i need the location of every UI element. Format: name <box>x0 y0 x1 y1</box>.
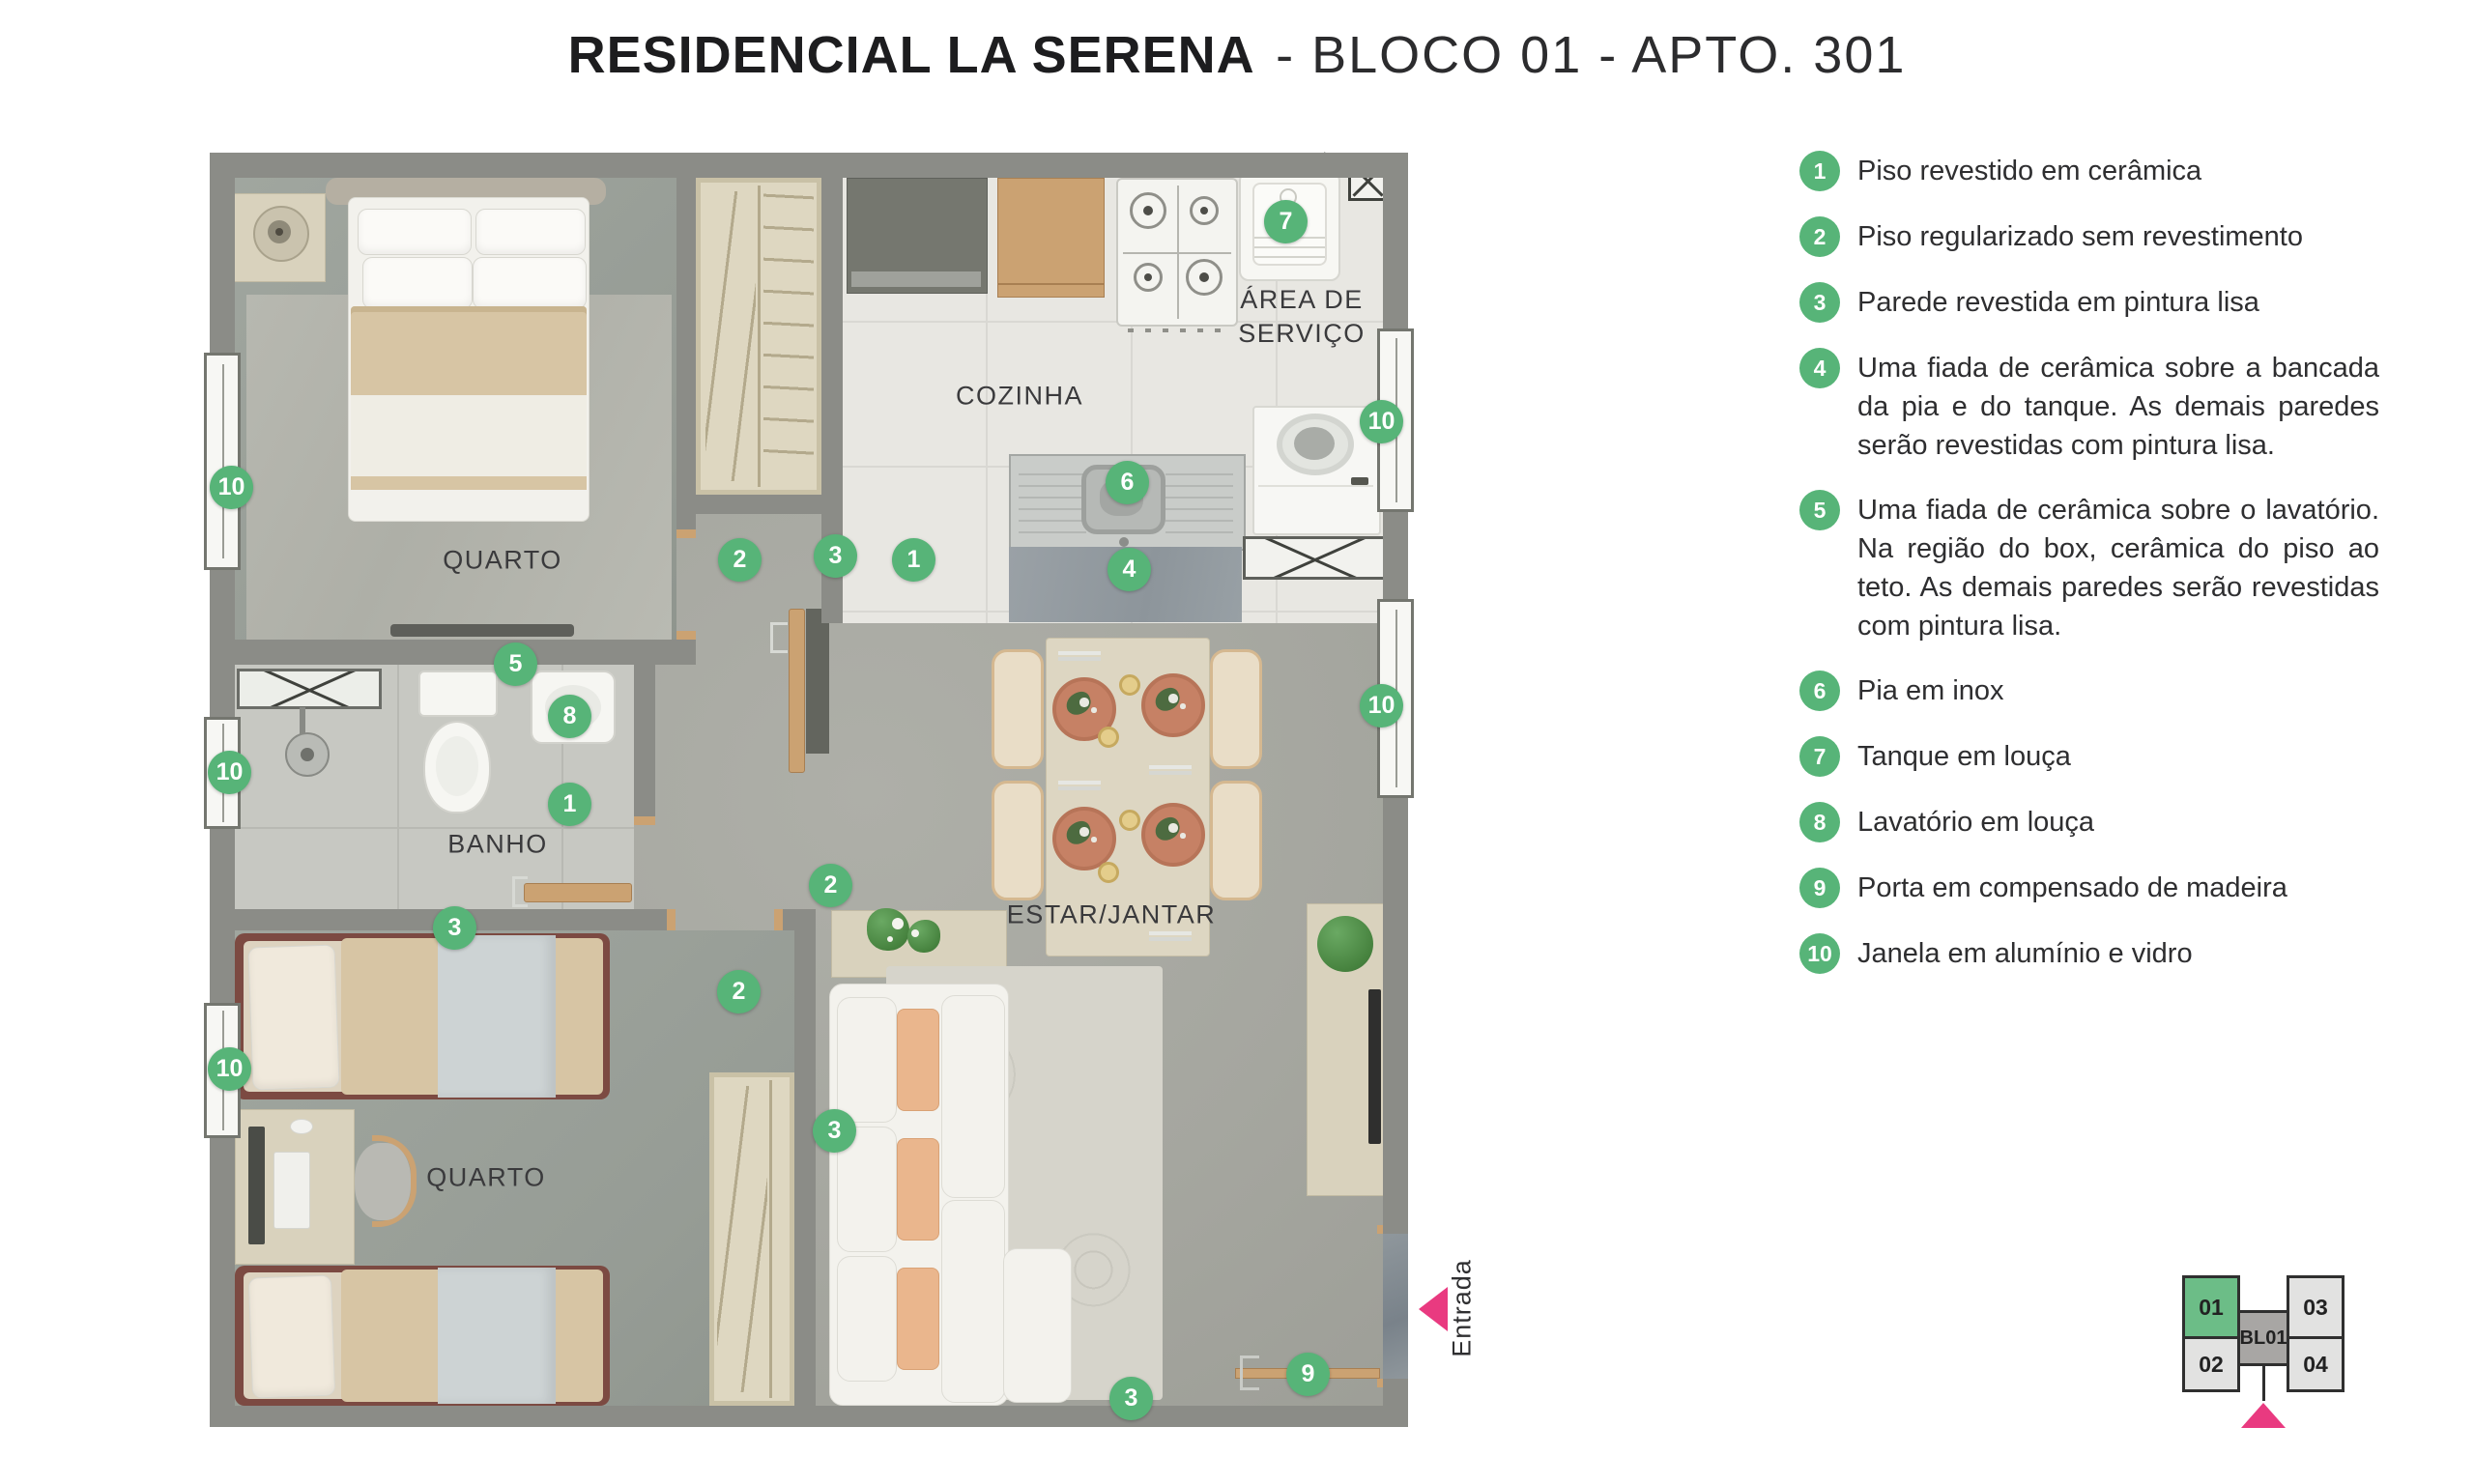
marker-10: 10 <box>1360 400 1403 443</box>
legend-list: 1Piso revestido em cerâmica2Piso regular… <box>1799 151 2389 974</box>
marker-2: 2 <box>718 538 762 582</box>
legend-item-text: Piso revestido em cerâmica <box>1857 151 2379 190</box>
block-key-arrow-icon <box>2241 1403 2286 1428</box>
room-label-estar-jantar: ESTAR/JANTAR <box>1007 900 1217 930</box>
block-label: BL01 <box>2237 1310 2289 1366</box>
unit-03: 03 <box>2287 1275 2345 1339</box>
legend-item-6: 6Pia em inox <box>1799 671 2389 711</box>
legend-item-text: Pia em inox <box>1857 671 2379 710</box>
legend-number-badge: 6 <box>1799 671 1840 711</box>
marker-3: 3 <box>814 534 857 578</box>
marker-6: 6 <box>1106 461 1149 504</box>
legend: 1Piso revestido em cerâmica2Piso regular… <box>1799 151 2389 999</box>
marker-4: 4 <box>1108 548 1151 591</box>
unit-02: 02 <box>2182 1336 2240 1392</box>
marker-2: 2 <box>809 864 852 907</box>
legend-item-text: Parede revestida em pintura lisa <box>1857 282 2379 322</box>
legend-number-badge: 7 <box>1799 736 1840 777</box>
legend-item-8: 8Lavatório em louça <box>1799 802 2389 842</box>
legend-item-2: 2Piso regularizado sem revestimento <box>1799 216 2389 257</box>
legend-item-1: 1Piso revestido em cerâmica <box>1799 151 2389 191</box>
legend-item-7: 7Tanque em louça <box>1799 736 2389 777</box>
room-label-quarto-1: QUARTO <box>443 546 562 576</box>
legend-item-text: Porta em compensado de madeira <box>1857 868 2379 907</box>
legend-item-9: 9Porta em compensado de madeira <box>1799 868 2389 908</box>
unit-01-highlighted: 01 <box>2182 1275 2240 1339</box>
legend-item-4: 4Uma fiada de cerâmica sobre a bancada d… <box>1799 348 2389 465</box>
room-label-cozinha: COZINHA <box>956 382 1083 412</box>
marker-1: 1 <box>548 783 591 826</box>
legend-item-text: Uma fiada de cerâmica sobre a bancada da… <box>1857 348 2379 465</box>
legend-item-10: 10Janela em alumínio e vidro <box>1799 933 2389 974</box>
legend-number-badge: 1 <box>1799 151 1840 191</box>
legend-item-text: Uma fiada de cerâmica sobre o lavatório.… <box>1857 490 2379 645</box>
marker-9: 9 <box>1286 1353 1330 1396</box>
marker-1: 1 <box>892 538 935 582</box>
marker-10: 10 <box>1360 684 1403 728</box>
legend-number-badge: 2 <box>1799 216 1840 257</box>
legend-number-badge: 4 <box>1799 348 1840 388</box>
floor-plan: QUARTOCOZINHAÁREA DE SERVIÇOBANHOESTAR/J… <box>210 147 1408 1427</box>
page-title: RESIDENCIAL LA SERENA - BLOCO 01 - APTO.… <box>0 25 2474 85</box>
legend-number-badge: 8 <box>1799 802 1840 842</box>
marker-10: 10 <box>210 466 253 509</box>
block-position-key: 01 02 BL01 03 04 <box>2174 1268 2358 1432</box>
legend-item-text: Lavatório em louça <box>1857 802 2379 842</box>
entrance-label: Entrada <box>1448 1259 1478 1357</box>
legend-number-badge: 10 <box>1799 933 1840 974</box>
legend-item-text: Piso regularizado sem revestimento <box>1857 216 2379 256</box>
marker-7: 7 <box>1264 200 1308 243</box>
marker-10: 10 <box>208 751 251 794</box>
room-label-quarto-2: QUARTO <box>426 1163 546 1193</box>
title-project: RESIDENCIAL LA SERENA <box>568 26 1255 84</box>
legend-number-badge: 9 <box>1799 868 1840 908</box>
marker-3: 3 <box>813 1109 856 1153</box>
legend-item-text: Janela em alumínio e vidro <box>1857 933 2379 973</box>
marker-5: 5 <box>494 642 537 686</box>
marker-3: 3 <box>1109 1377 1153 1420</box>
block-key-stem <box>2262 1366 2265 1401</box>
title-suffix <box>1259 26 1276 84</box>
legend-item-5: 5Uma fiada de cerâmica sobre o lavatório… <box>1799 490 2389 645</box>
title-unit: - BLOCO 01 - APTO. 301 <box>1276 26 1906 84</box>
legend-number-badge: 5 <box>1799 490 1840 530</box>
marker-10: 10 <box>208 1047 251 1091</box>
room-label-banho: BANHO <box>447 830 548 860</box>
marker-3: 3 <box>433 906 476 950</box>
unit-04: 04 <box>2287 1336 2345 1392</box>
legend-item-3: 3Parede revestida em pintura lisa <box>1799 282 2389 323</box>
marker-2: 2 <box>717 970 761 1013</box>
legend-item-text: Tanque em louça <box>1857 736 2379 776</box>
room-label-area-servico: ÁREA DE SERVIÇO <box>1191 283 1413 351</box>
legend-number-badge: 3 <box>1799 282 1840 323</box>
marker-8: 8 <box>548 695 591 738</box>
entrance-arrow-icon <box>1419 1287 1448 1331</box>
